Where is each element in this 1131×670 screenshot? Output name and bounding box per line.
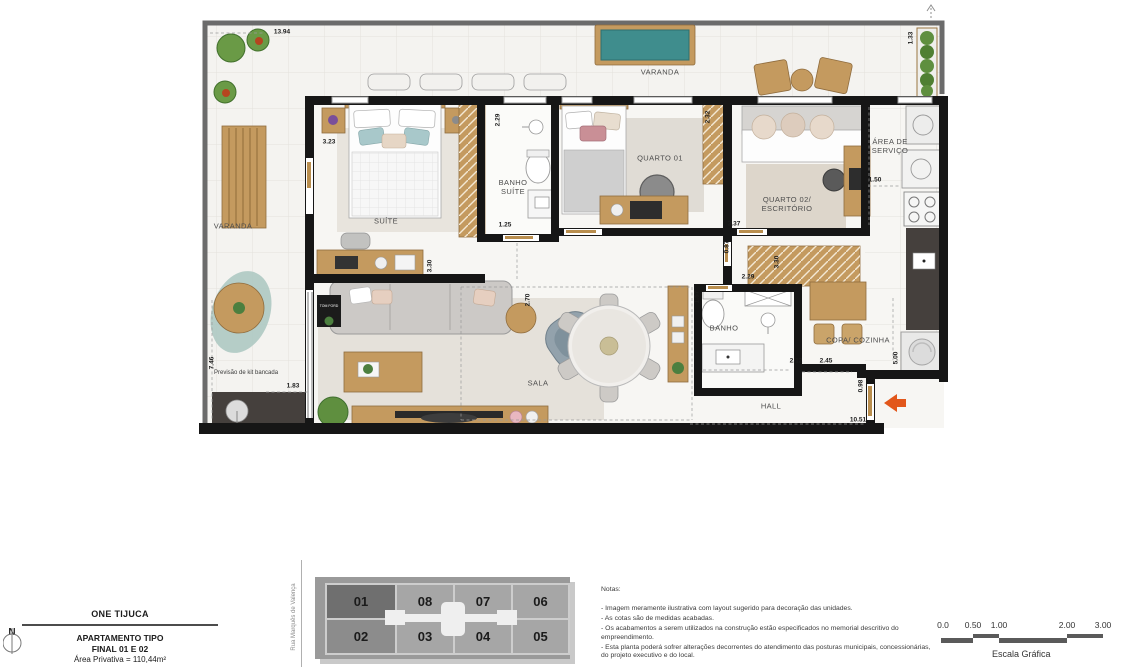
corridor-closet (748, 246, 860, 286)
note-item: - As cotas são de medidas acabadas. (601, 615, 931, 623)
street-line (301, 560, 302, 667)
floor-plan-sheet: VARANDA VARANDA SUÍTE BANHO SUÍTE QUARTO… (0, 0, 1131, 670)
kitchen-island (906, 228, 944, 330)
suite-varanda-door (307, 162, 311, 188)
scale-label: Escala Gráfica (992, 649, 1051, 659)
scale-segment (999, 638, 1067, 643)
scale-segment (973, 634, 999, 639)
floor-plan-drawing (0, 0, 1131, 670)
room-label-banho-suite: BANHO SUÍTE (491, 178, 535, 196)
room-label-hall: HALL (761, 402, 781, 411)
room-label-quarto01: QUARTO 01 (637, 154, 683, 163)
scale-tick: 0.0 (937, 620, 949, 630)
dim-label: 1.57 (694, 291, 701, 304)
note-item: - Imagem meramente ilustrativa com layou… (601, 605, 931, 613)
graphic-scale: 0.0 0.50 1.00 2.00 3.00 Escala Gráfica (930, 615, 1120, 665)
stove (904, 192, 940, 226)
street-label: Rua Marquês de Valença (291, 583, 297, 650)
q2-chair (823, 169, 845, 191)
pool (595, 25, 695, 65)
scale-segment (1067, 634, 1103, 639)
key-plan-unit-05: 05 (512, 619, 569, 654)
planter-right (917, 28, 937, 98)
quarto01-door (566, 230, 596, 233)
scale-tick: 3.00 (1095, 620, 1112, 630)
scale-tick: 0.50 (965, 620, 982, 630)
dim-label: 2.12 (790, 358, 803, 365)
plant (318, 397, 348, 427)
suite-bed (349, 104, 441, 218)
copa-table (810, 282, 866, 320)
tomford-label: TOM FORD (319, 304, 339, 308)
dim-label: 1.83 (287, 383, 300, 390)
patio-table (791, 69, 813, 91)
q1-desk (600, 196, 688, 224)
dim-label: 1.33 (908, 32, 915, 45)
dim-label: 3.37 (728, 221, 741, 228)
room-label-varanda-left: VARANDA (214, 222, 253, 231)
wood-deck (222, 126, 266, 228)
kitchen-sink (901, 332, 943, 372)
dim-label: 0.98 (858, 380, 865, 393)
nightstand-plant (328, 115, 338, 125)
dim-label: 5.00 (893, 352, 900, 365)
quarto02-door (739, 230, 763, 233)
dim-label: 7.46 (209, 357, 216, 370)
dim-label: 10.51 (850, 417, 866, 424)
banho-suite-door (505, 236, 533, 239)
dim-label: 0.87 (724, 241, 731, 254)
scale-tick: 1.00 (991, 620, 1008, 630)
key-plan-elevator-core (441, 602, 465, 636)
banho-sink (702, 344, 764, 372)
dim-label: 1.50 (869, 177, 882, 184)
scale-segment (941, 638, 973, 643)
room-label-suite: SUÍTE (374, 217, 398, 226)
room-label-banho: BANHO (710, 324, 739, 333)
shower-head (761, 313, 775, 327)
room-label-copa-cozinha: COPA/ COZINHA (826, 336, 890, 345)
dim-label: 2.29 (742, 274, 755, 281)
north-compass: N (3, 627, 21, 638)
project-title: ONE TIJUCA (22, 609, 218, 626)
notes-block: Notas: - Imagem meramente ilustrativa co… (601, 586, 931, 662)
room-label-varanda-top: VARANDA (641, 68, 680, 77)
dim-label: 2.29 (495, 114, 502, 127)
sofa (330, 281, 512, 334)
dim-label: 3.30 (774, 256, 781, 269)
private-area: Área Privativa = 110,44m² (22, 655, 218, 664)
key-plan-stair-left (385, 610, 405, 625)
key-plan-unit-06: 06 (512, 584, 569, 619)
dim-label: 2.32 (705, 111, 712, 124)
coffee-table (344, 352, 422, 392)
dim-label: 3.30 (427, 260, 434, 273)
key-plan: 01 08 07 06 02 03 04 05 (315, 577, 570, 659)
dryer (902, 150, 940, 188)
shower-head (529, 120, 543, 134)
dim-label: 2.70 (525, 294, 532, 307)
title-block: ONE TIJUCA APARTAMENTO TIPO FINAL 01 E 0… (22, 609, 218, 664)
note-item: - Os acabamentos a serem utilizados na c… (601, 625, 931, 642)
apartment-type: APARTAMENTO TIPO (22, 633, 218, 643)
entrance-door (868, 386, 872, 416)
scale-tick: 2.00 (1059, 620, 1076, 630)
vent-arrow (927, 5, 935, 18)
key-plan-stair-right (497, 610, 517, 625)
notes-heading: Notas: (601, 586, 931, 594)
dim-label: 1.25 (499, 222, 512, 229)
note-item: - Esta planta poderá sofrer alterações d… (601, 644, 931, 661)
dim-label: 2.45 (820, 358, 833, 365)
kit-bancada-note: Previsão de kit bancada (214, 370, 280, 378)
room-label-sala: SALA (528, 379, 549, 388)
room-label-area-servico: ÁREA DE SERVIÇO (862, 137, 918, 155)
side-table (506, 303, 536, 333)
dim-label: 3.23 (323, 139, 336, 146)
room-label-quarto02: QUARTO 02/ ESCRITÓRIO (750, 195, 824, 213)
round-table (214, 283, 264, 333)
apartment-finals: FINAL 01 E 02 (22, 644, 218, 654)
banho-door (708, 286, 728, 289)
dim-label: 13.94 (274, 29, 290, 36)
